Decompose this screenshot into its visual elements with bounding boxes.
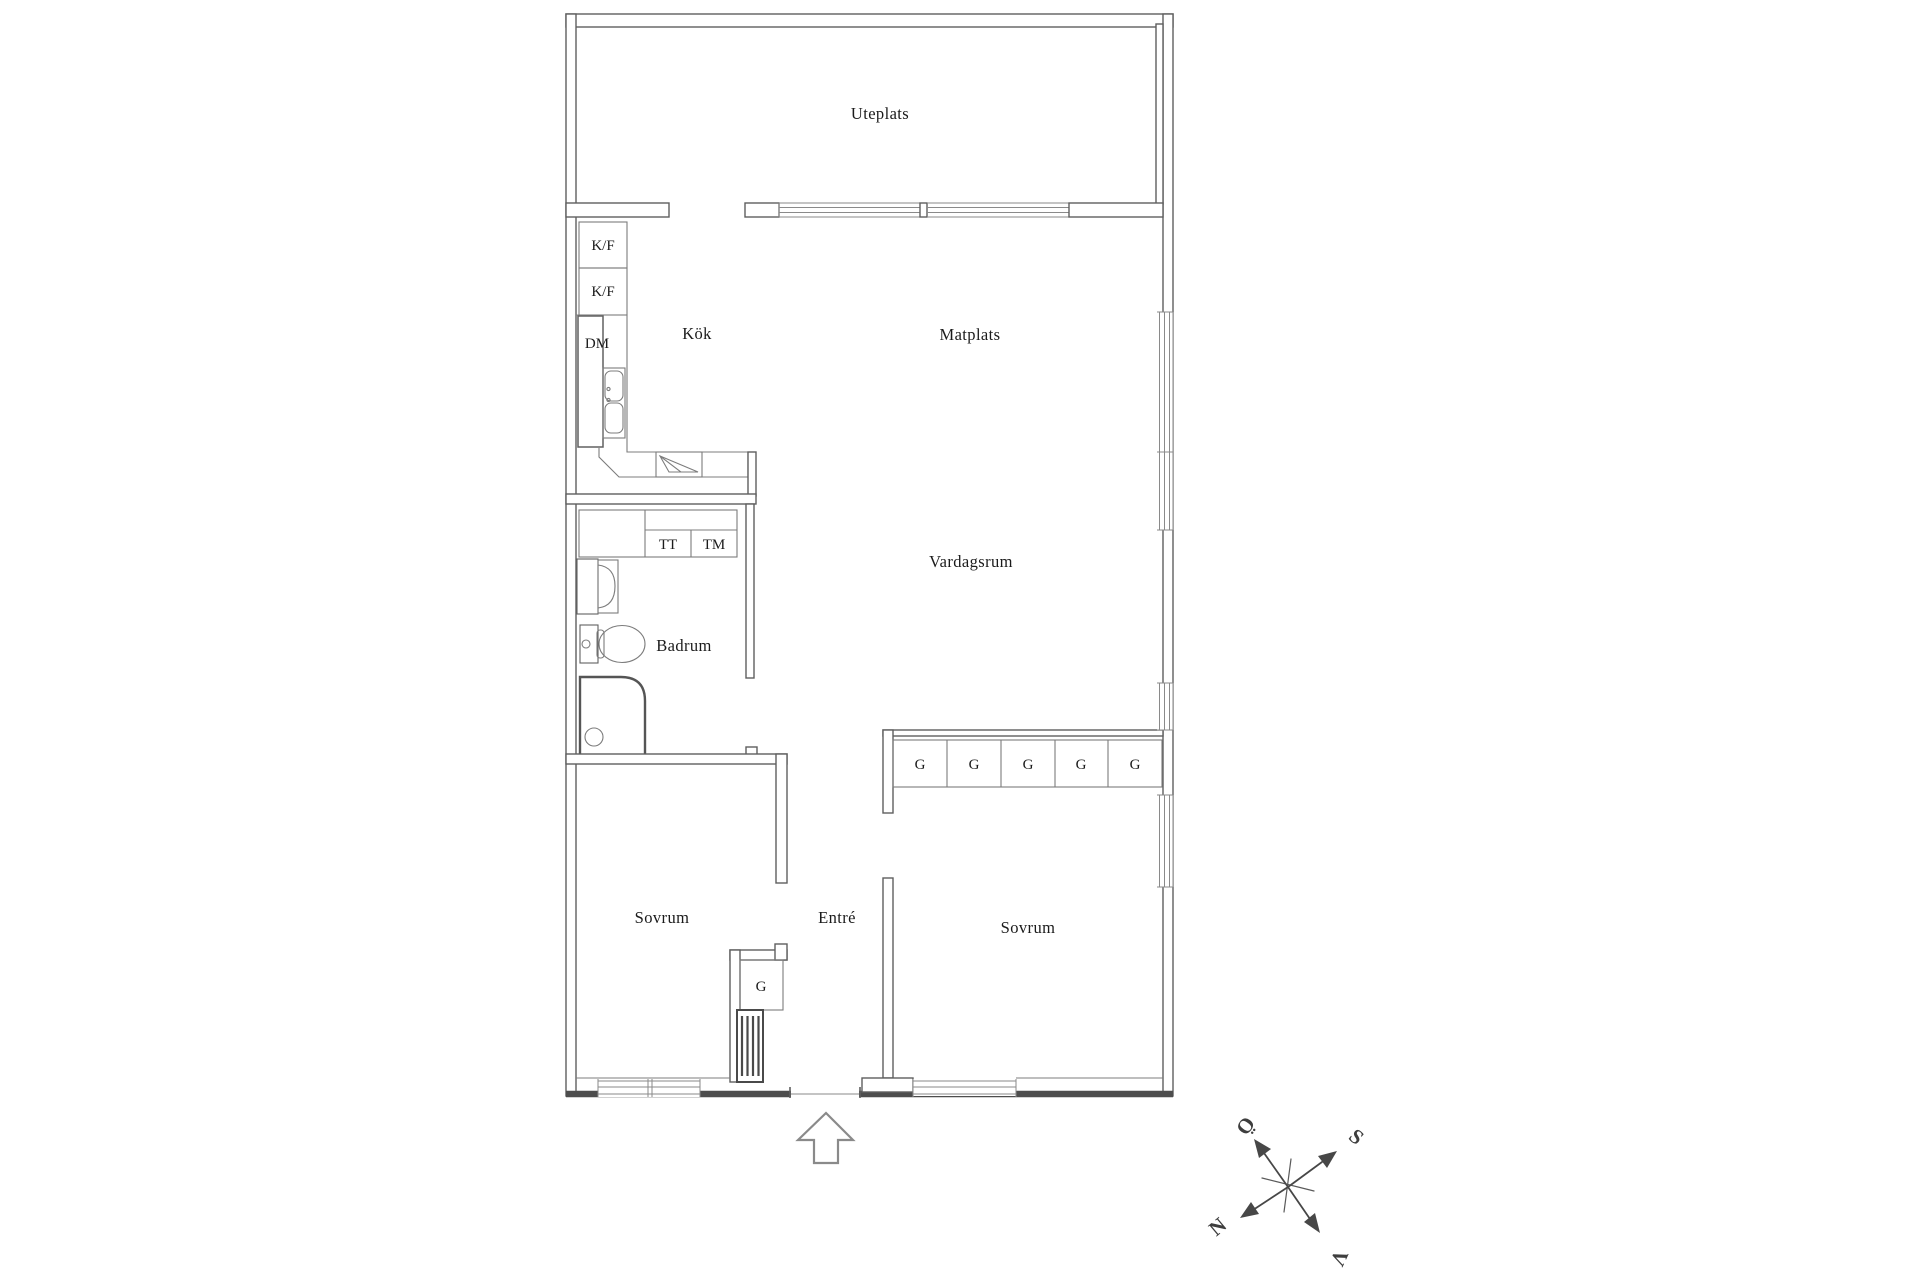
window-top-2	[927, 203, 1069, 217]
entrance-door-opening	[790, 1087, 860, 1100]
entre-closet	[730, 944, 787, 1082]
label-fridge-freezer-1: K/F	[591, 238, 614, 254]
room-label-kok: Kök	[682, 324, 712, 343]
compass-rose: Ö S N V	[1204, 1112, 1369, 1269]
kitchen-bath-wall	[566, 494, 756, 504]
outer-walls	[566, 14, 1173, 1096]
fixture-labels: K/F K/F DM TT TM G G G G G G	[585, 238, 1141, 995]
window-right-big	[1157, 312, 1173, 530]
label-wardrobe-4: G	[1076, 757, 1087, 773]
kitchen-fixtures	[576, 222, 756, 496]
compass-west-label: V	[1325, 1246, 1353, 1270]
label-wardrobe-5: G	[1130, 757, 1141, 773]
window-bottom-left	[598, 1079, 700, 1097]
radiator	[737, 1010, 763, 1082]
room-label-sovrum-left: Sovrum	[635, 908, 690, 927]
label-wardrobe-2: G	[969, 757, 980, 773]
window-right-mid	[1157, 683, 1173, 730]
counter-end-wall	[748, 452, 756, 496]
room-label-badrum: Badrum	[656, 636, 712, 655]
room-label-uteplats: Uteplats	[851, 104, 909, 123]
room-labels: Uteplats Kök Matplats Vardagsrum Badrum …	[635, 104, 1056, 937]
compass-north-label: N	[1204, 1213, 1231, 1241]
stove-hob	[656, 452, 702, 477]
floor-plan-drawing: Ö S N V Uteplats Kök Matplats Vardagsrum…	[0, 0, 1920, 1280]
bathroom-east-wall	[746, 504, 754, 678]
kitchen-sink	[603, 368, 625, 438]
floor-plan-page: Ö S N V Uteplats Kök Matplats Vardagsrum…	[0, 0, 1920, 1280]
label-dishwasher: DM	[585, 336, 609, 352]
bathroom-fixtures	[577, 559, 645, 755]
compass-east-label: Ö	[1231, 1112, 1260, 1139]
label-wardrobe-1: G	[915, 757, 926, 773]
toilet	[580, 625, 645, 663]
washbasin	[577, 559, 618, 614]
room-label-sovrum-right: Sovrum	[1001, 918, 1056, 937]
room-label-vardagsrum: Vardagsrum	[929, 552, 1013, 571]
patio-wall-and-windows	[566, 203, 1163, 217]
window-bottom-right	[913, 1079, 1016, 1097]
shower	[580, 677, 645, 755]
label-fridge-freezer-2: K/F	[591, 284, 614, 300]
compass-south-label: S	[1344, 1124, 1368, 1150]
label-washer: TM	[703, 537, 726, 553]
window-right-bedroom	[1157, 795, 1173, 887]
window-top-1	[779, 203, 920, 217]
entrance-arrow	[798, 1113, 853, 1163]
room-label-entre: Entré	[818, 908, 856, 927]
room-label-matplats: Matplats	[940, 325, 1001, 344]
label-wardrobe-entre: G	[756, 979, 767, 995]
label-wardrobe-3: G	[1023, 757, 1034, 773]
label-dryer: TT	[659, 537, 677, 553]
